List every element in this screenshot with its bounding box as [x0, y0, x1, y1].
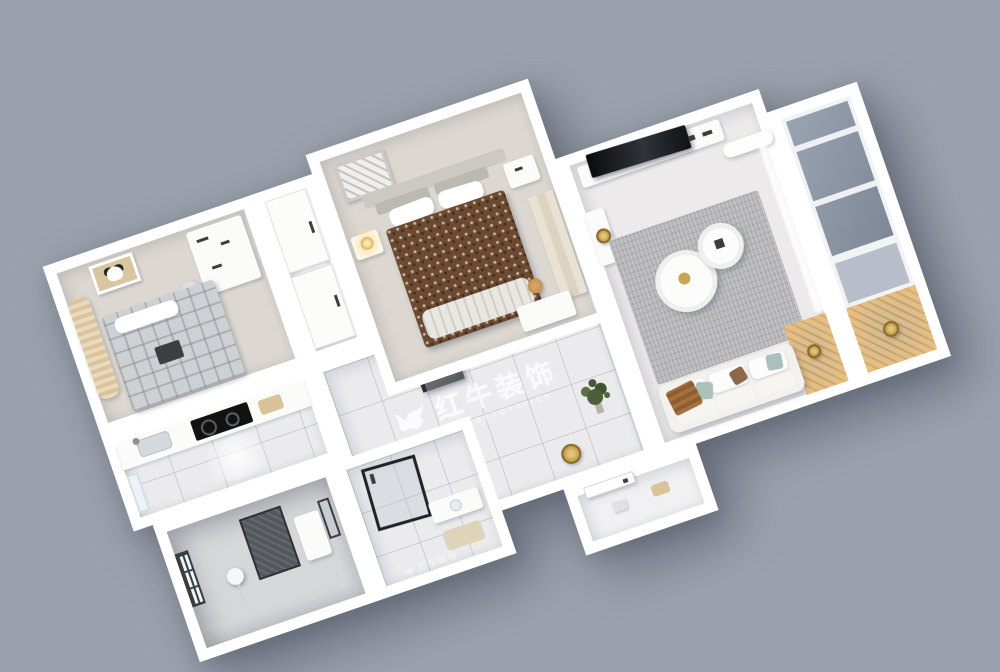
- watermark-title: 红牛装饰: [417, 548, 460, 573]
- shoe-decor: [650, 480, 671, 497]
- shower-head: [369, 474, 376, 485]
- render-canvas: 红牛装饰 HONG NIU DECORATION: [0, 0, 1000, 672]
- console-decor: [702, 130, 713, 137]
- burner: [199, 417, 219, 437]
- door-handle: [622, 478, 628, 483]
- faucet: [132, 437, 141, 446]
- panda-wall-art: [88, 252, 141, 295]
- panda-icon: [105, 264, 125, 282]
- balcony-round-table: [881, 319, 901, 339]
- side-table: [805, 342, 823, 360]
- nightstand-right: [502, 154, 541, 189]
- cooktop: [190, 402, 254, 441]
- burner: [224, 410, 242, 428]
- nightstand-decor: [514, 166, 523, 171]
- table-decor: [714, 238, 725, 249]
- gold-wall-decor: [559, 441, 584, 466]
- floor-lamp: [225, 566, 247, 588]
- sink-counter: [428, 486, 484, 524]
- plant-leaves: [585, 387, 605, 407]
- door-handle: [334, 295, 341, 307]
- tv: [585, 125, 691, 178]
- closet-sliding-door: [265, 188, 330, 274]
- shoe-decor: [612, 499, 628, 513]
- glass-shower: [361, 454, 432, 531]
- door-handle: [308, 221, 315, 233]
- plaid-bed: [101, 279, 245, 412]
- bathroom-window: [174, 550, 205, 608]
- pillow: [113, 298, 181, 335]
- cutting-board: [257, 394, 285, 416]
- brand-watermark-small: 红牛装饰: [386, 543, 475, 583]
- plant-pot: [595, 403, 605, 414]
- throw-pillow-teal: [765, 352, 784, 371]
- folded-blanket: [154, 339, 184, 364]
- table-decor-gold: [677, 271, 692, 286]
- dark-tiled-shower-wall: [239, 505, 301, 580]
- lamp-stem: [238, 584, 246, 604]
- potted-plant: [582, 386, 610, 414]
- desk-item: [196, 236, 208, 243]
- desk-item: [212, 263, 222, 269]
- desk-item: [220, 240, 229, 246]
- basin: [448, 498, 463, 513]
- bull-logo-icon: [401, 563, 417, 578]
- closet-sliding-door: [291, 264, 356, 350]
- kitchen-window: [126, 472, 150, 514]
- apartment-floorplan: 红牛装饰 HONG NIU DECORATION: [36, 0, 974, 672]
- kitchen-sink: [135, 430, 173, 458]
